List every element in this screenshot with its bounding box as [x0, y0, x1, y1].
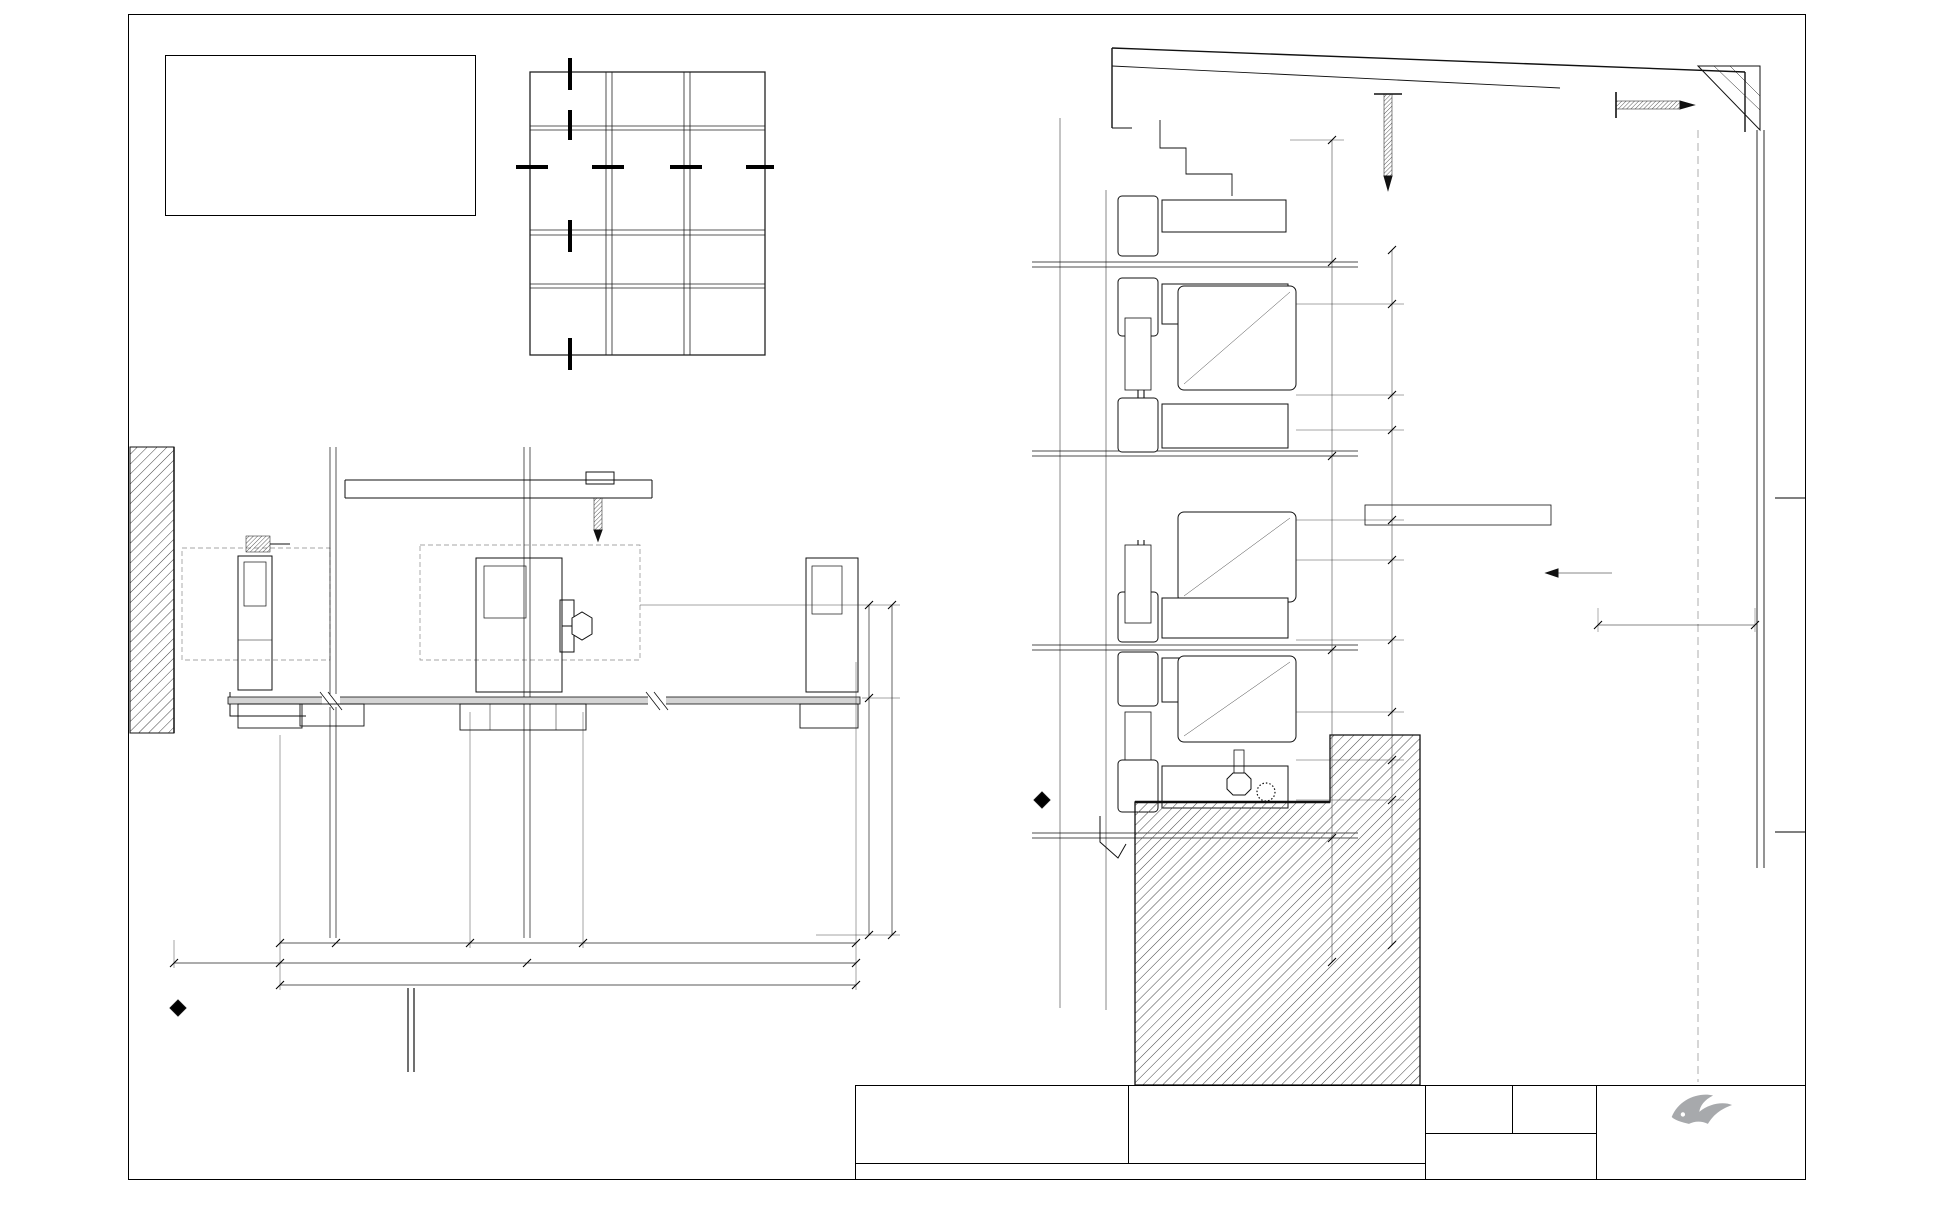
thermosash-bird-icon	[1653, 1086, 1749, 1136]
annotation-overlay	[0, 0, 1959, 1210]
drawing-sheet	[0, 0, 1959, 1210]
thermosash-logo	[1597, 1086, 1805, 1179]
contact-footer	[856, 1163, 1425, 1180]
